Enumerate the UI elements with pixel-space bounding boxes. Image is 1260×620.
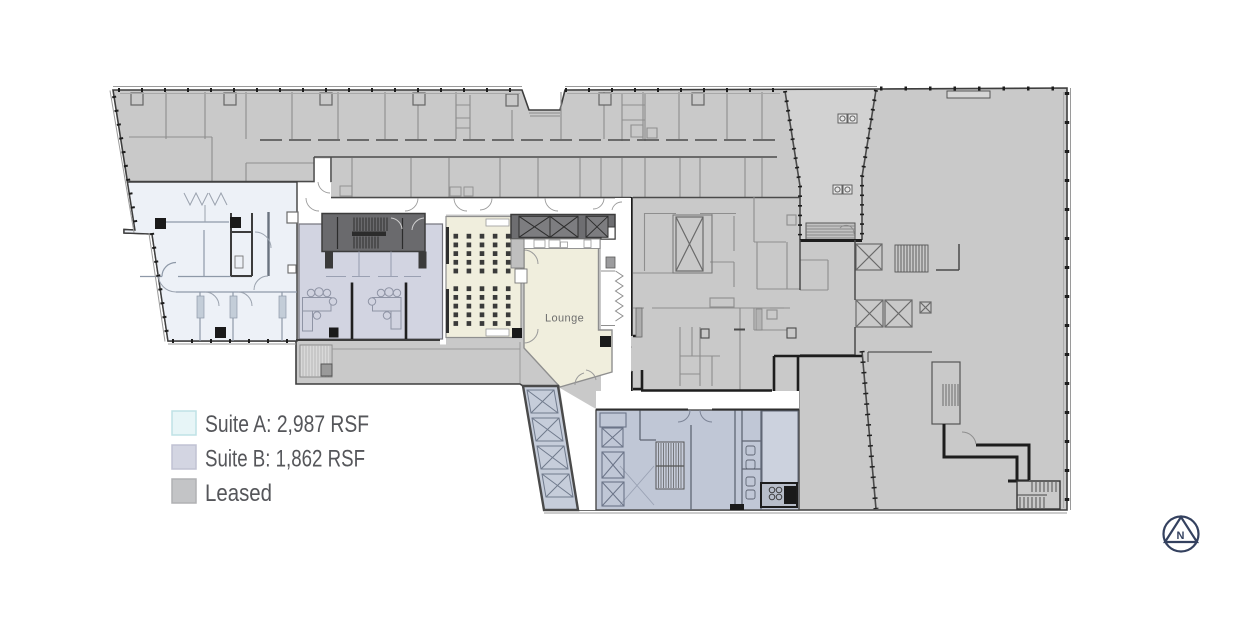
svg-text:N: N xyxy=(1177,530,1185,542)
svg-text:Suite A: 2,987 RSF: Suite A: 2,987 RSF xyxy=(205,411,369,438)
svg-text:Suite B: 1,862 RSF: Suite B: 1,862 RSF xyxy=(205,446,365,473)
svg-text:Leased: Leased xyxy=(205,480,272,507)
svg-text:Lounge: Lounge xyxy=(545,313,584,325)
